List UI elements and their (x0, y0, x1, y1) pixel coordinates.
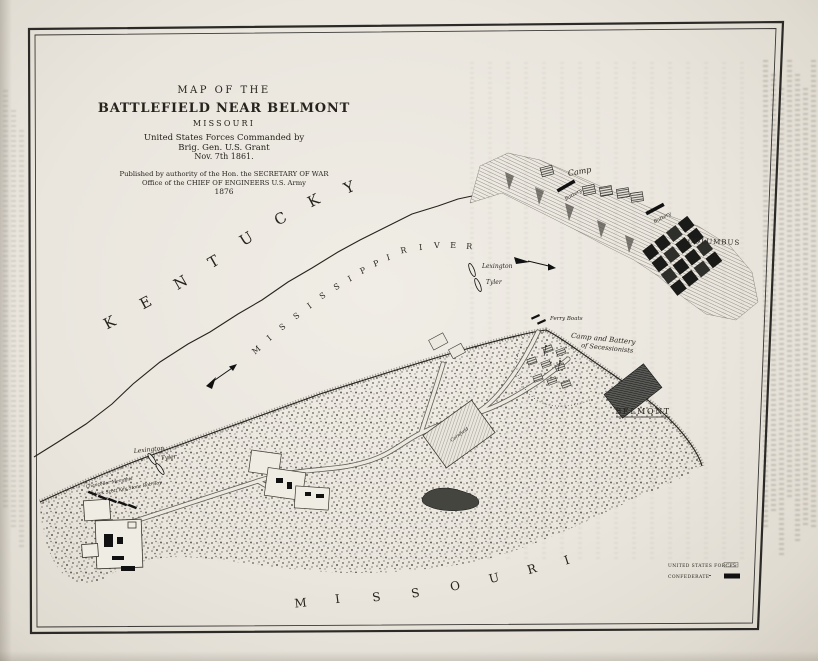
svg-text:E: E (137, 292, 155, 313)
camp-label: Camp (567, 165, 592, 178)
svg-text:V: V (433, 241, 440, 250)
title-line-3: MISSOURI (193, 119, 255, 128)
svg-text:O: O (449, 578, 462, 594)
svg-text:S: S (332, 282, 341, 293)
svg-text:N: N (170, 272, 190, 294)
title-line-6: Nov. 7th 1861. (194, 152, 253, 161)
river-arrow-downstream (514, 257, 556, 271)
map-sheet: MAP OF THE BATTLEFIELD NEAR BELMONT MISS… (0, 0, 818, 661)
title-pub-3: 1876 (214, 187, 233, 196)
svg-text:C: C (271, 208, 290, 229)
title-line-2: BATTLEFIELD NEAR BELMONT (98, 101, 350, 116)
ferry-boats-label: Ferry Boats (549, 316, 583, 322)
svg-text:I: I (419, 243, 423, 252)
svg-text:R: R (400, 245, 408, 255)
svg-text:M: M (294, 595, 308, 610)
svg-text:E: E (450, 241, 456, 250)
svg-text:R: R (526, 561, 539, 577)
svg-text:S: S (292, 311, 302, 321)
gunboat-label-lexington: Lexington (481, 263, 513, 270)
title-line-4: United States Forces Commanded by (144, 133, 305, 143)
svg-text:S: S (318, 291, 328, 302)
legend-confederate-swatch (724, 574, 740, 579)
svg-text:T: T (205, 251, 223, 272)
svg-text:P: P (372, 258, 381, 269)
svg-text:I: I (346, 274, 353, 283)
title-line-1: MAP OF THE (177, 85, 270, 96)
svg-text:I: I (386, 253, 392, 263)
svg-text:U: U (487, 570, 500, 586)
belmont-label: BELMONT (615, 407, 670, 416)
title-block: MAP OF THE BATTLEFIELD NEAR BELMONT MISS… (98, 85, 350, 196)
svg-text:I: I (306, 301, 314, 310)
title-pub-1: Published by authority of the Hon. the S… (120, 170, 330, 178)
legend: UNITED STATES FORCES CONFEDERATE (668, 563, 740, 581)
photographed-map-page: MAP OF THE BATTLEFIELD NEAR BELMONT MISS… (0, 0, 818, 661)
svg-text:S: S (410, 585, 421, 600)
river-arrow-upstream (206, 364, 237, 389)
svg-text:M: M (250, 344, 262, 356)
svg-text:S: S (371, 590, 381, 605)
svg-text:Y: Y (340, 177, 358, 198)
svg-text:S: S (278, 322, 288, 332)
region-label-kentucky: KENTUCKY (100, 177, 358, 333)
ferry-boats (531, 314, 546, 325)
legend-confederate-label: CONFEDERATE (668, 574, 709, 580)
svg-text:K: K (100, 312, 119, 334)
svg-text:I: I (562, 553, 571, 568)
kentucky-bluffs (470, 153, 758, 320)
gunboats-midriver: Lexington Tyler (467, 263, 512, 293)
svg-text:R: R (466, 242, 474, 252)
gunboat-label-tyler: Tyler (486, 279, 503, 286)
title-pub-2: Office of the CHIEF OF ENGINEERS U.S. Ar… (142, 179, 306, 187)
svg-text:U: U (236, 228, 256, 250)
legend-us-swatch (724, 563, 738, 568)
svg-text:K: K (304, 190, 323, 212)
svg-text:I: I (265, 334, 273, 343)
svg-text:P: P (359, 265, 368, 276)
svg-text:I: I (334, 592, 341, 607)
